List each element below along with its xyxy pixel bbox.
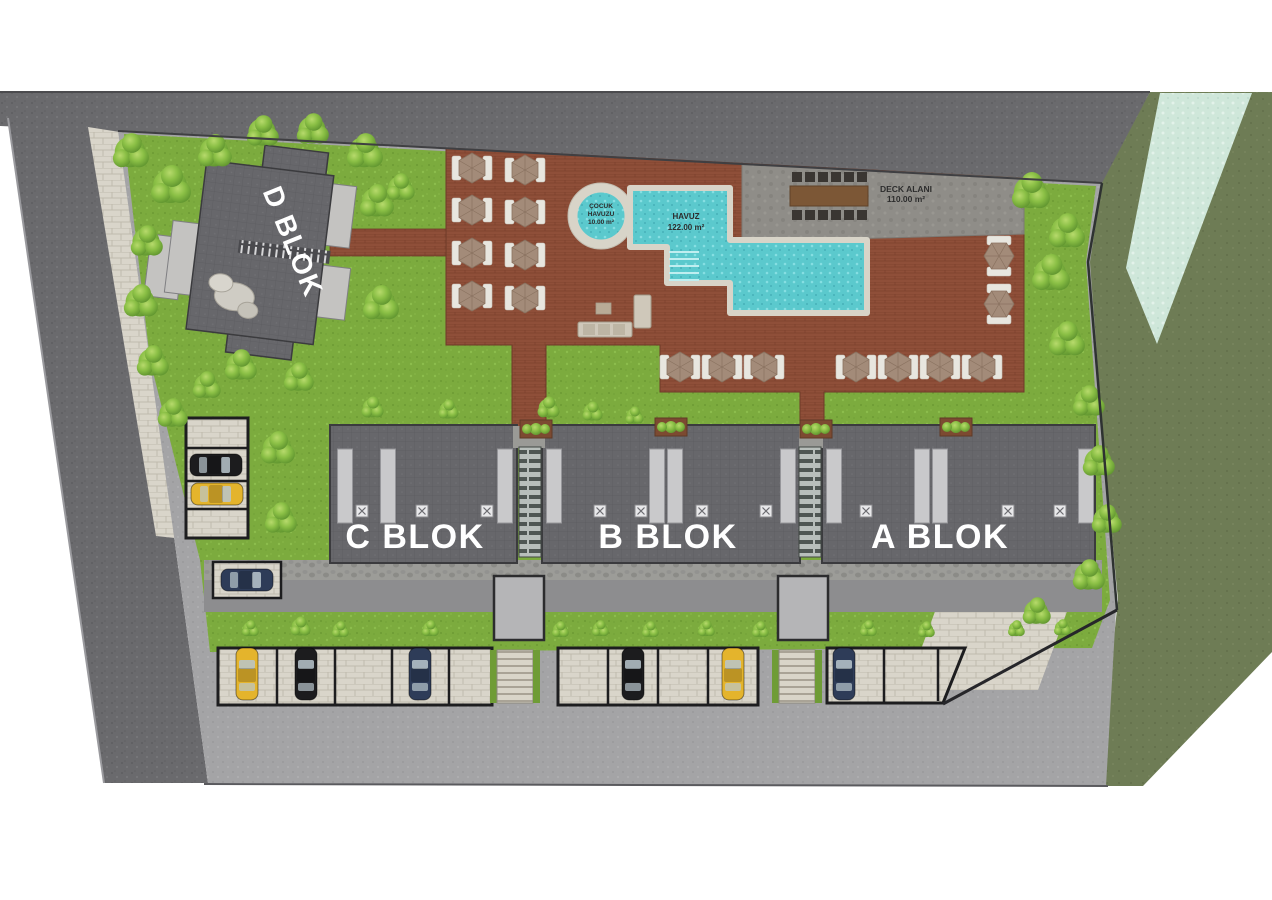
walkway-bands bbox=[204, 560, 1102, 612]
deck-label: DECK ALANI bbox=[880, 184, 932, 194]
skylight bbox=[547, 449, 562, 523]
roof-vent bbox=[356, 505, 368, 517]
skylight bbox=[933, 449, 948, 523]
svg-text:HAVUZ: HAVUZ bbox=[673, 212, 700, 221]
skylight bbox=[668, 449, 683, 523]
skylight bbox=[381, 449, 396, 523]
roof-vent bbox=[696, 505, 708, 517]
stairs-between-b-a bbox=[799, 447, 821, 557]
c-blok-building: C BLOK bbox=[330, 425, 517, 563]
deck-area-label: 110.00 m² bbox=[887, 194, 925, 204]
car-yellow bbox=[722, 648, 744, 700]
skylight bbox=[781, 449, 796, 523]
roof-vent bbox=[416, 505, 428, 517]
umbrella bbox=[984, 284, 1014, 324]
car-navy bbox=[409, 648, 431, 700]
umbrella bbox=[452, 153, 492, 183]
umbrella bbox=[962, 352, 1002, 382]
site-plan-drawing: DECK ALANI 110.00 m² ÇOCUK HAVUZU 10.00 … bbox=[0, 0, 1272, 900]
svg-text:ÇOCUK: ÇOCUK bbox=[589, 203, 613, 210]
roof-vent bbox=[1054, 505, 1066, 517]
entrance-box-b-a bbox=[778, 576, 828, 640]
umbrella bbox=[505, 155, 545, 185]
umbrella bbox=[452, 281, 492, 311]
roof-vent bbox=[635, 505, 647, 517]
skylight bbox=[827, 449, 842, 523]
umbrella bbox=[702, 352, 742, 382]
roof-vent bbox=[594, 505, 606, 517]
umbrella bbox=[505, 197, 545, 227]
umbrella bbox=[505, 283, 545, 313]
umbrella bbox=[660, 352, 700, 382]
skylight bbox=[498, 449, 513, 523]
umbrella bbox=[878, 352, 918, 382]
umbrella bbox=[920, 352, 960, 382]
stairs-to-parking-1 bbox=[490, 650, 540, 703]
b-blok-label: B BLOK bbox=[598, 518, 737, 556]
stairs-between-c-b bbox=[519, 447, 541, 557]
planter bbox=[940, 418, 972, 436]
umbrella bbox=[744, 352, 784, 382]
skylight bbox=[915, 449, 930, 523]
roof-vent bbox=[1002, 505, 1014, 517]
umbrella bbox=[836, 352, 876, 382]
a-blok-building: A BLOK bbox=[822, 425, 1095, 563]
stairs-to-parking-2 bbox=[772, 650, 822, 703]
a-blok-label: A BLOK bbox=[871, 518, 1009, 556]
skylight bbox=[650, 449, 665, 523]
umbrella bbox=[452, 238, 492, 268]
car-yellow bbox=[236, 648, 258, 700]
umbrella bbox=[505, 240, 545, 270]
skylight bbox=[338, 449, 353, 523]
car-black bbox=[295, 648, 317, 700]
car-navy bbox=[221, 569, 273, 591]
planter bbox=[520, 420, 552, 438]
umbrella bbox=[984, 236, 1014, 276]
entrance-box-c-b bbox=[494, 576, 544, 640]
car-black bbox=[190, 454, 242, 476]
svg-text:10.00 m²: 10.00 m² bbox=[588, 219, 615, 226]
b-blok-building: B BLOK bbox=[542, 425, 800, 563]
svg-text:HAVUZU: HAVUZU bbox=[588, 211, 615, 218]
planter bbox=[655, 418, 687, 436]
svg-text:122.00 m²: 122.00 m² bbox=[668, 223, 705, 232]
roof-vent bbox=[860, 505, 872, 517]
car-yellow bbox=[191, 483, 243, 505]
car-black bbox=[622, 648, 644, 700]
kids-pool-label: ÇOCUK HAVUZU 10.00 m² bbox=[588, 203, 615, 226]
roof-vent bbox=[481, 505, 493, 517]
roof-vent bbox=[760, 505, 772, 517]
site-plan-page: DECK ALANI 110.00 m² ÇOCUK HAVUZU 10.00 … bbox=[0, 0, 1272, 900]
umbrella bbox=[452, 195, 492, 225]
car-navy bbox=[833, 648, 855, 700]
planter bbox=[800, 420, 832, 438]
c-blok-label: C BLOK bbox=[345, 518, 484, 556]
